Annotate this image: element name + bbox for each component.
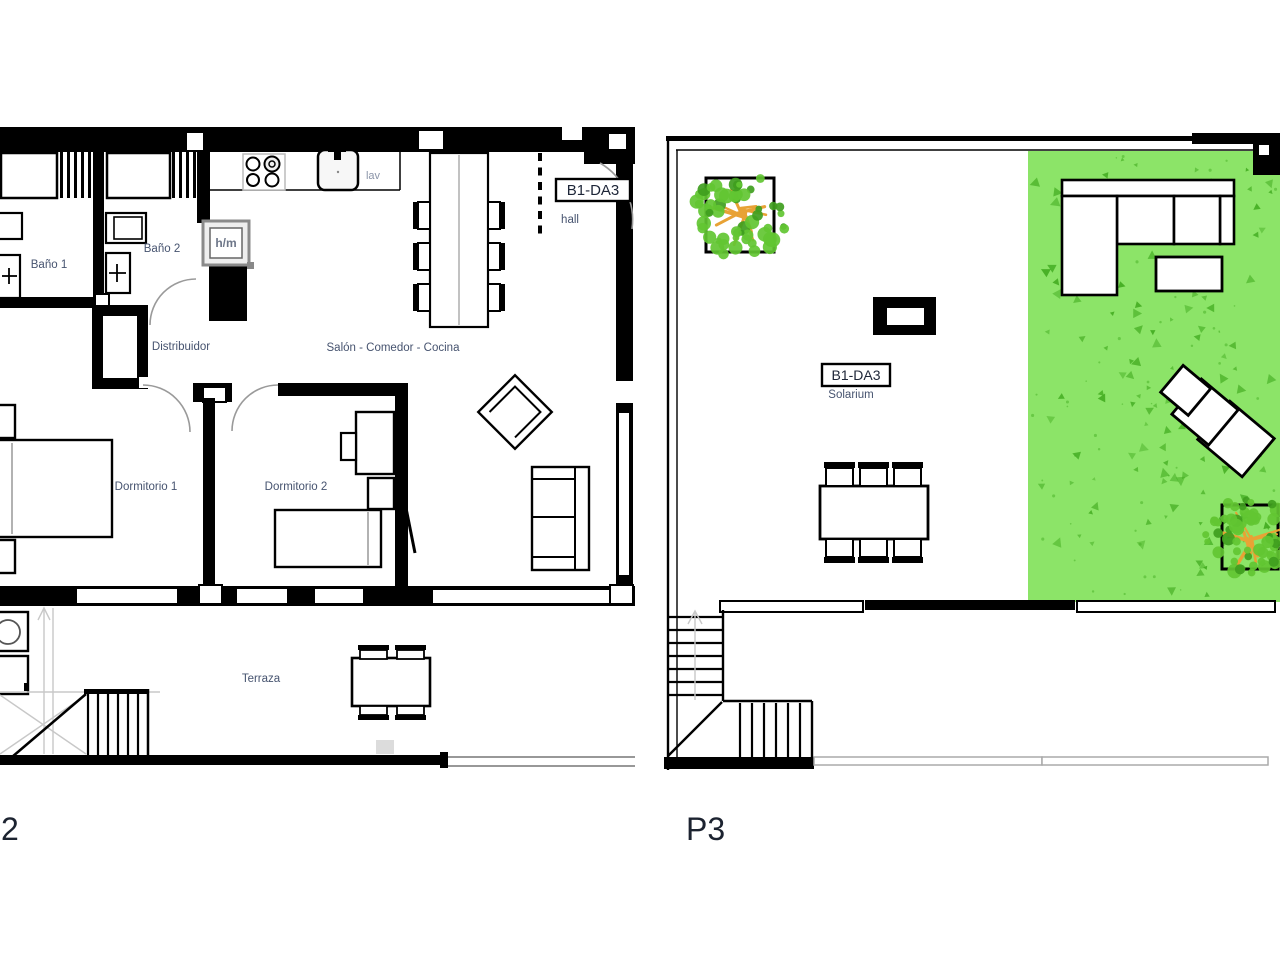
label-bano1: Baño 1 bbox=[31, 259, 67, 271]
label-solarium: Solarium bbox=[828, 389, 873, 401]
bed-dormitorio2 bbox=[275, 510, 381, 567]
salon-furniture bbox=[478, 375, 589, 570]
unit-tag-text-p2: B1-DA3 bbox=[567, 182, 620, 199]
coffee-table-icon bbox=[1156, 257, 1222, 291]
wardrobe-icon bbox=[368, 478, 394, 509]
sofa-icon bbox=[532, 467, 589, 570]
stairs-p3 bbox=[668, 610, 812, 757]
label-terraza: Terraza bbox=[242, 673, 281, 685]
label-hall: hall bbox=[561, 214, 579, 226]
terraza-table bbox=[352, 645, 430, 720]
chair-icon bbox=[341, 433, 356, 460]
label-distribuidor: Distribuidor bbox=[152, 341, 210, 353]
label-dormitorio2: Dormitorio 2 bbox=[265, 481, 328, 493]
label-salon: Salón - Comedor - Cocina bbox=[327, 342, 461, 354]
unit-tag-p2: B1-DA3 bbox=[556, 179, 630, 201]
label-lav: lav bbox=[366, 170, 381, 182]
desk-icon bbox=[356, 412, 394, 474]
bathroom-fixtures bbox=[0, 213, 146, 298]
unit-tag-p3: B1-DA3 Solarium bbox=[822, 364, 890, 401]
terraza-area bbox=[0, 608, 430, 757]
sink-icon bbox=[318, 146, 358, 190]
unit-tag-text-p3: B1-DA3 bbox=[831, 367, 880, 383]
floorplan-canvas: lav h/m bbox=[0, 0, 1280, 960]
sink1-icon bbox=[0, 213, 22, 239]
skylight-icon bbox=[873, 297, 936, 335]
plan-id-p2: 2 bbox=[1, 811, 19, 847]
louvre-hatch-2 bbox=[172, 150, 196, 198]
bed-dormitorio1 bbox=[0, 405, 112, 573]
label-bano2: Baño 2 bbox=[144, 243, 180, 255]
terraza-stairs bbox=[12, 689, 148, 757]
stove-icon bbox=[243, 154, 285, 190]
plan-id-p3: P3 bbox=[686, 811, 725, 847]
hm-unit: h/m bbox=[203, 221, 254, 269]
dining-table-p2 bbox=[413, 153, 505, 327]
floorplan-page: lav h/m bbox=[0, 0, 1280, 960]
floor-plan-p2: lav h/m bbox=[0, 127, 635, 847]
appliance-icon bbox=[0, 656, 28, 694]
washing-machine-icon bbox=[0, 612, 28, 651]
floor-plan-p3: B1-DA3 Solarium P3 bbox=[664, 133, 1280, 847]
louvre-hatch-1 bbox=[60, 150, 91, 198]
label-dormitorio1: Dormitorio 1 bbox=[115, 481, 178, 493]
label-hm: h/m bbox=[215, 236, 236, 250]
dining-table-p3 bbox=[820, 462, 928, 563]
armchair-icon bbox=[478, 375, 552, 449]
